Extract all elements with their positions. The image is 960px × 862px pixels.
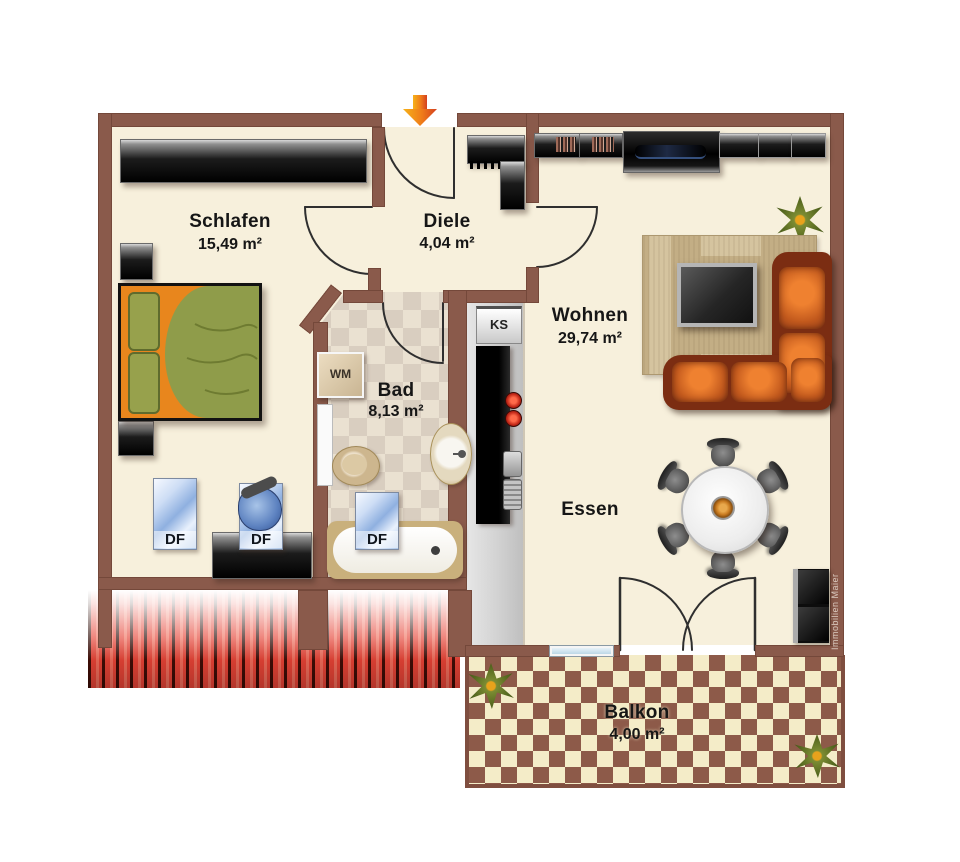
nightstand-bottom (118, 421, 154, 456)
entrance-door-arc (384, 128, 454, 198)
bath-sink (430, 423, 472, 485)
room-area-wohnen: 29,74 m² (528, 330, 652, 348)
room-area-schlafen: 15,49 m² (160, 236, 300, 254)
balcony-door-right-arc (683, 578, 755, 650)
coat-rack-hangers (470, 161, 500, 169)
coat-rack-bar (467, 135, 525, 164)
bed-blanket (165, 286, 259, 418)
floor-plan: DF DF Schlafen 15,49 m² Diele 4,04 m² WM… (0, 0, 960, 862)
pillow (128, 292, 160, 351)
room-name-diele: Diele (385, 212, 509, 233)
roof-window-label: DF (240, 531, 282, 548)
sofa-cushion (779, 267, 825, 329)
books (592, 137, 614, 152)
sideboard-bottom-right (793, 569, 829, 643)
sofa-cushion (672, 362, 728, 402)
wall-top-left (98, 113, 382, 127)
stove-burner (505, 392, 522, 409)
wall-living-bottom-2 (613, 645, 620, 657)
fridge: KS (476, 306, 522, 344)
stove-burner (505, 410, 522, 427)
table-centerpiece (711, 496, 735, 520)
room-area-diele: 4,04 m² (385, 235, 509, 253)
bookshelf (579, 133, 623, 158)
wardrobe (120, 139, 367, 183)
washing-machine-label: WM (319, 368, 362, 381)
living-door-arc (537, 207, 597, 267)
roof-window-bath: DF (355, 492, 399, 550)
books (556, 137, 576, 152)
tv-on-board (635, 145, 706, 159)
wall-hall-living-lower (526, 267, 539, 303)
cabinet (791, 133, 826, 158)
kitchen-sink-basin (503, 451, 522, 477)
wall-living-bottom-1 (465, 645, 550, 657)
wall-left (98, 113, 112, 648)
fridge-label: KS (477, 318, 521, 332)
double-bed (118, 283, 262, 421)
room-area-bad: 8,13 m² (346, 403, 446, 421)
room-area-balkon: 4,00 m² (577, 726, 697, 744)
cabinet (758, 133, 792, 158)
living-window (550, 646, 613, 656)
sofa-cushion (731, 362, 787, 402)
coat-rack-side (500, 161, 525, 210)
bath-heater (317, 404, 333, 486)
bath-door-arc (383, 303, 443, 363)
toilet (332, 446, 380, 486)
roof-window-label: DF (154, 531, 196, 548)
roof-window-bedroom-1: DF (153, 478, 197, 550)
kitchen-sink-drainer (503, 479, 522, 510)
bedroom-door-arc (305, 207, 372, 274)
room-name-bad: Bad (346, 381, 446, 402)
tv-lowboard (623, 131, 720, 173)
wall-top-right (457, 113, 844, 127)
nightstand-top (120, 243, 153, 280)
room-name-schlafen: Schlafen (160, 212, 300, 233)
cabinet (719, 133, 759, 158)
watermark-text: Immobilien Maier (830, 570, 843, 650)
bookshelf (534, 133, 580, 158)
wall-bedroom-hall-upper (372, 127, 385, 207)
wall-hall-living-upper (526, 113, 539, 203)
roof-window-label: DF (356, 531, 398, 548)
wall-roof-divider (298, 590, 328, 650)
bathtub-drain (431, 546, 440, 555)
room-name-balkon: Balkon (577, 703, 697, 724)
pillow (128, 352, 160, 414)
tv-on-rug (677, 263, 757, 327)
sofa-cushion (791, 358, 825, 402)
wall-bath-top-left (343, 290, 383, 303)
room-name-wohnen: Wohnen (528, 306, 652, 327)
room-name-essen: Essen (540, 500, 640, 521)
balcony-door-left-arc (620, 578, 692, 650)
